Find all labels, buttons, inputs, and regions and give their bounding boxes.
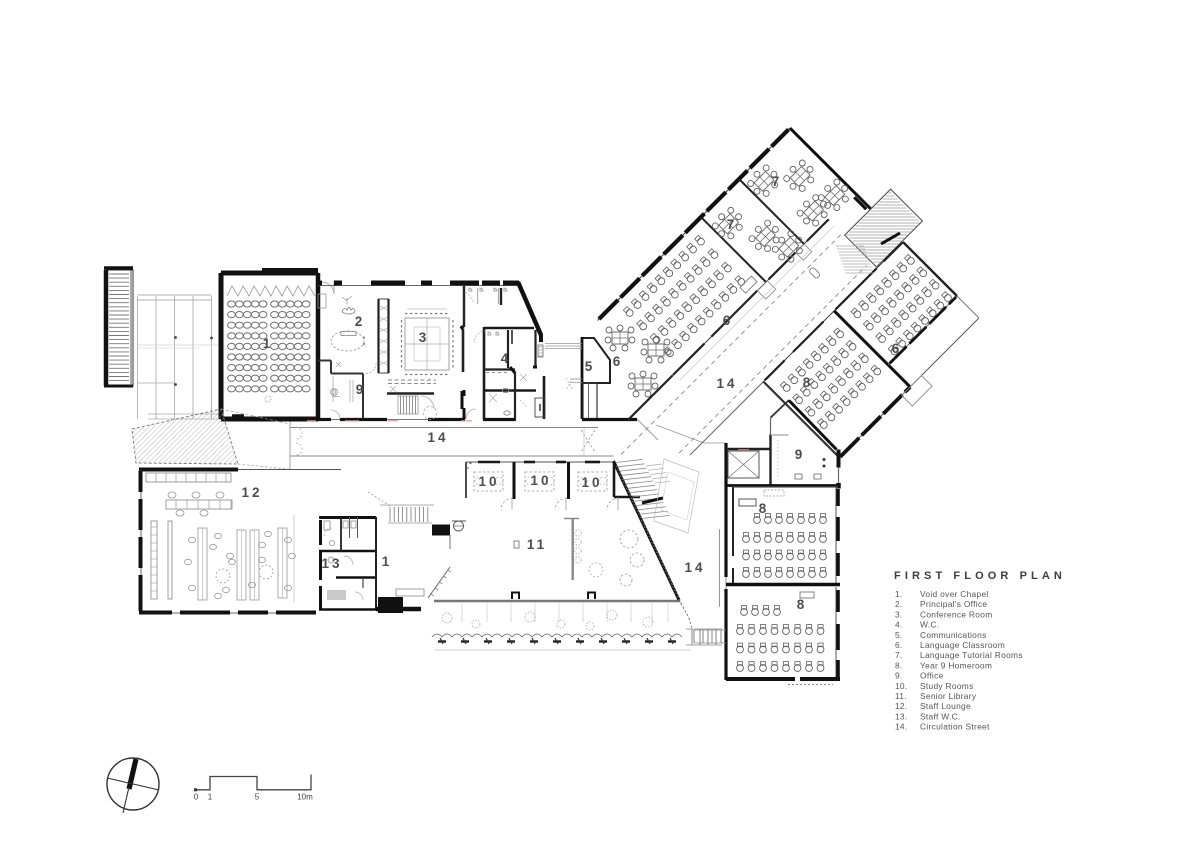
svg-text:8: 8 — [797, 597, 808, 612]
svg-text:10: 10 — [581, 475, 602, 490]
svg-text:Staff Lounge: Staff Lounge — [920, 701, 971, 711]
svg-text:5: 5 — [585, 359, 596, 374]
svg-text:5.: 5. — [895, 630, 902, 640]
svg-text:10m: 10m — [297, 793, 313, 802]
svg-text:1: 1 — [382, 554, 393, 569]
svg-text:12: 12 — [241, 485, 262, 500]
svg-text:8: 8 — [759, 501, 770, 516]
svg-text:Conference Room: Conference Room — [920, 609, 992, 619]
svg-text:6: 6 — [613, 354, 624, 369]
svg-text:11: 11 — [527, 537, 547, 552]
svg-text:14.: 14. — [895, 722, 907, 732]
svg-text:4: 4 — [501, 351, 512, 366]
svg-text:2: 2 — [355, 314, 366, 329]
svg-text:4.: 4. — [895, 620, 902, 630]
svg-text:Language Tutorial Rooms: Language Tutorial Rooms — [920, 650, 1023, 660]
svg-text:9: 9 — [356, 382, 367, 397]
svg-text:FIRST FLOOR PLAN: FIRST FLOOR PLAN — [894, 570, 1066, 582]
svg-text:2.: 2. — [895, 599, 902, 609]
svg-text:7: 7 — [772, 174, 783, 189]
svg-text:W.C.: W.C. — [920, 620, 939, 630]
svg-text:1: 1 — [263, 336, 274, 351]
svg-text:9.: 9. — [895, 671, 902, 681]
svg-text:6: 6 — [892, 341, 903, 356]
svg-text:6.: 6. — [895, 640, 902, 650]
svg-text:Communications: Communications — [920, 630, 987, 640]
svg-text:13.: 13. — [895, 711, 907, 721]
svg-text:11.: 11. — [895, 691, 907, 701]
svg-text:8: 8 — [803, 375, 814, 390]
svg-text:3: 3 — [419, 330, 430, 345]
svg-text:14: 14 — [427, 430, 448, 445]
svg-text:13: 13 — [321, 556, 342, 571]
svg-text:Void over Chapel: Void over Chapel — [920, 589, 989, 599]
svg-text:14: 14 — [684, 560, 705, 575]
svg-text:Senior Library: Senior Library — [920, 691, 977, 701]
svg-text:14: 14 — [716, 376, 737, 391]
svg-text:1.: 1. — [895, 589, 902, 599]
svg-text:9: 9 — [795, 447, 806, 462]
svg-text:12.: 12. — [895, 701, 907, 711]
svg-text:Language Classroom: Language Classroom — [920, 640, 1005, 650]
svg-text:10: 10 — [530, 473, 551, 488]
svg-text:10.: 10. — [895, 681, 907, 691]
svg-text:3.: 3. — [895, 609, 902, 619]
svg-text:8.: 8. — [895, 660, 902, 670]
svg-text:6: 6 — [723, 313, 734, 328]
svg-text:7: 7 — [727, 217, 738, 232]
svg-text:0: 0 — [194, 793, 199, 802]
svg-text:1: 1 — [208, 793, 213, 802]
svg-text:Circulation Street: Circulation Street — [920, 722, 990, 732]
svg-text:Principal's Office: Principal's Office — [920, 599, 987, 609]
svg-text:10: 10 — [478, 474, 499, 489]
svg-text:Study Rooms: Study Rooms — [920, 681, 974, 691]
svg-text:Office: Office — [920, 671, 944, 681]
svg-text:5: 5 — [255, 793, 260, 802]
svg-text:7.: 7. — [895, 650, 902, 660]
svg-text:Staff W.C.: Staff W.C. — [920, 711, 961, 721]
svg-text:Year 9 Homeroom: Year 9 Homeroom — [920, 660, 992, 670]
